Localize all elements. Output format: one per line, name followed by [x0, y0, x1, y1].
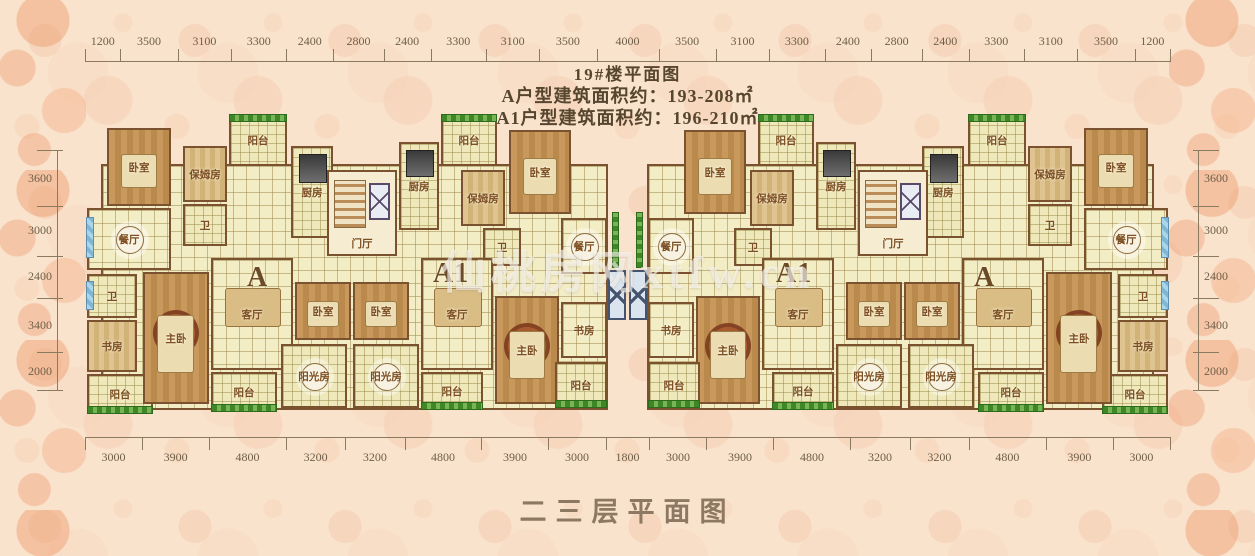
xbox-furniture	[369, 183, 391, 219]
room-label: 卧室	[129, 160, 150, 175]
dimension-segment: 3400	[23, 298, 57, 352]
room-label: 卧室	[313, 304, 334, 319]
dimension-value: 3500	[556, 34, 580, 48]
dimension-segment: 3100	[178, 34, 231, 62]
dimension-segment: 3400	[1199, 298, 1233, 352]
dimension-value: 2400	[298, 34, 322, 48]
dimension-value: 2400	[1204, 269, 1228, 284]
room-label: 客厅	[788, 307, 809, 322]
room-label: 卧室	[1106, 160, 1127, 175]
room-label: 卫	[497, 240, 508, 255]
dimension-segment: 3200	[345, 437, 404, 465]
dimension-segment: 3000	[649, 437, 706, 465]
dimension-value: 3600	[1204, 171, 1228, 186]
dimension-segment: 3300	[231, 34, 286, 62]
dimension-value: 3300	[984, 34, 1008, 48]
dimension-value: 4800	[236, 450, 260, 464]
room-bath-a-west: 卫	[87, 274, 137, 318]
room-balcony-a-sc-mirror: 阳台	[978, 372, 1044, 412]
dimension-segment: 2400	[23, 256, 57, 299]
dimension-value: 3200	[927, 450, 951, 464]
room-label: 阳光房	[370, 369, 402, 384]
room-label: 保姆房	[1034, 167, 1066, 182]
room-bedroom-a1-north: 卧室	[509, 130, 571, 214]
room-label: 卫	[200, 218, 211, 233]
xbox-furniture	[900, 183, 922, 219]
dimension-segment: 3000	[85, 437, 142, 465]
dimension-value: 3100	[730, 34, 754, 48]
room-kitchen-a1-mirror: 厨房	[816, 142, 856, 230]
room-label: 卫	[1045, 218, 1056, 233]
room-label: 餐厅	[119, 232, 140, 247]
dimension-segment: 3300	[769, 34, 824, 62]
dimension-scale-bottom: 3000390048003200320048003900300018003000…	[85, 437, 1170, 465]
dimension-value: 1800	[615, 450, 639, 464]
room-label: 卧室	[922, 304, 943, 319]
dimension-segment: 3100	[1024, 34, 1077, 62]
dimension-value: 2400	[28, 269, 52, 284]
room-label: 客厅	[447, 307, 468, 322]
room-label: 卫	[107, 289, 118, 304]
room-kitchen-a-mirror: 厨房	[922, 146, 964, 238]
room-label: 阳台	[571, 378, 592, 393]
room-label: 阳台	[776, 133, 797, 148]
dimension-segment: 4800	[209, 437, 286, 465]
dimension-value: 2400	[933, 34, 957, 48]
dimension-value: 2800	[346, 34, 370, 48]
dimension-value: 3200	[868, 450, 892, 464]
room-label: 阳台	[110, 387, 131, 402]
dimension-value: 3300	[247, 34, 271, 48]
unit-type-label-A: A	[974, 262, 995, 294]
room-study-a: 书房	[87, 320, 137, 372]
room-sunroom-a1-mirror: 阳光房	[836, 344, 902, 408]
window-strip	[86, 217, 94, 258]
room-kitchen-a1: 厨房	[399, 142, 439, 230]
room-dining-a1-mirror: 餐厅	[648, 218, 694, 274]
room-label: 阳光房	[298, 369, 330, 384]
dimension-value: 3000	[565, 450, 589, 464]
dimension-value: 1200	[91, 34, 115, 48]
room-label: 门厅	[352, 236, 373, 251]
room-label: 客厅	[993, 307, 1014, 322]
dimension-segment: 3000	[548, 437, 605, 465]
room-label: 书房	[102, 339, 123, 354]
dimension-segment: 3200	[286, 437, 345, 465]
dimension-value: 3200	[304, 450, 328, 464]
dimension-value: 3300	[446, 34, 470, 48]
room-sunroom-a-mirror: 阳光房	[908, 344, 974, 408]
dimension-segment: 3900	[142, 437, 209, 465]
dimension-value: 3100	[1039, 34, 1063, 48]
dimension-value: 3100	[501, 34, 525, 48]
dimension-segment: 3500	[539, 34, 596, 62]
room-label: 主卧	[718, 343, 739, 358]
room-label: 厨房	[409, 179, 430, 194]
room-center-planter-right	[636, 212, 643, 268]
planter-strip	[978, 404, 1044, 412]
dimension-value: 3100	[192, 34, 216, 48]
planter-strip	[772, 402, 834, 410]
dimension-value: 2000	[1204, 364, 1228, 379]
room-master-a1-mirror: 主卧	[696, 296, 760, 404]
dimension-segment: 4800	[773, 437, 850, 465]
dimension-value: 4000	[616, 34, 640, 48]
room-label: 阳台	[987, 133, 1008, 148]
dimension-value: 3900	[164, 450, 188, 464]
unit-a-area: A户型建筑面积约：193-208㎡	[0, 85, 1255, 107]
dimension-value: 3000	[102, 450, 126, 464]
dimension-value: 3500	[137, 34, 161, 48]
dimension-value: 3300	[785, 34, 809, 48]
dimension-value: 2400	[836, 34, 860, 48]
room-entry-core-mirror: 门厅	[858, 170, 928, 256]
stairs-furniture	[865, 180, 897, 228]
stove-furniture	[823, 150, 850, 177]
room-label: 主卧	[166, 331, 187, 346]
planter-strip	[211, 404, 277, 412]
room-bedroom-a1-north-mirror: 卧室	[684, 130, 746, 214]
dimension-segment: 2800	[333, 34, 384, 62]
window-strip	[86, 281, 94, 310]
dimension-value: 3200	[363, 450, 387, 464]
dimension-value: 3600	[28, 171, 52, 186]
room-label: 保姆房	[189, 167, 221, 182]
dimension-segment: 3300	[431, 34, 486, 62]
dimension-value: 2800	[885, 34, 909, 48]
room-label: 阳台	[1001, 385, 1022, 400]
dimension-segment: 3300	[969, 34, 1024, 62]
room-label: 书房	[574, 323, 595, 338]
room-bedroom-a1-south: 卧室	[353, 282, 409, 340]
dimension-scale-top: 1200350031003300240028002400330031003500…	[85, 34, 1170, 62]
room-dining-a-mirror: 餐厅	[1084, 208, 1168, 270]
room-label: 保姆房	[467, 191, 499, 206]
room-label: 主卧	[517, 343, 538, 358]
dimension-value: 3500	[675, 34, 699, 48]
dimension-segment: 3900	[481, 437, 548, 465]
stove-furniture	[406, 150, 433, 177]
dimension-segment: 3000	[1113, 437, 1170, 465]
unit-a1-area: A1户型建筑面积约：196-210㎡	[0, 107, 1255, 129]
room-balcony-a1-sc-mirror: 阳台	[772, 372, 834, 410]
room-label: 门厅	[883, 236, 904, 251]
room-label: 阳光房	[925, 369, 957, 384]
dimension-segment: 3900	[706, 437, 773, 465]
room-label: 主卧	[1069, 331, 1090, 346]
unit-type-label-A: A	[247, 262, 268, 294]
dimension-value: 3000	[1204, 223, 1228, 238]
stove-furniture	[299, 154, 328, 182]
dimension-value: 3900	[503, 450, 527, 464]
room-balcony-a1-se: 阳台	[555, 362, 607, 408]
room-master-a-mirror: 主卧	[1046, 272, 1112, 404]
dimension-segment: 3500	[659, 34, 716, 62]
room-balcony-a1-se-mirror: 阳台	[648, 362, 700, 408]
room-bath-a-top-mirror: 卫	[1028, 204, 1072, 246]
stove-furniture	[930, 154, 959, 182]
window-strip	[1161, 281, 1169, 310]
room-bedroom-nw: 卧室	[107, 128, 171, 206]
dimension-value: 3500	[1094, 34, 1118, 48]
room-nanny-a1-mirror: 保姆房	[750, 170, 794, 226]
room-label: 卫	[1138, 289, 1149, 304]
room-label: 保姆房	[756, 191, 788, 206]
room-label: 卧室	[705, 165, 726, 180]
room-label: 阳台	[248, 133, 269, 148]
dimension-value: 4800	[800, 450, 824, 464]
dimension-segment: 3500	[120, 34, 177, 62]
room-label: 厨房	[302, 185, 323, 200]
planter-strip	[421, 402, 483, 410]
room-label: 阳台	[234, 385, 255, 400]
unit-type-label-A1: A1	[433, 258, 469, 290]
room-label: 卧室	[864, 304, 885, 319]
room-label: 阳台	[793, 384, 814, 399]
dimension-segment: 4000	[597, 34, 659, 62]
dimension-segment: 3600	[23, 150, 57, 206]
dimension-segment: 4800	[405, 437, 482, 465]
room-bath-a-top: 卫	[183, 204, 227, 246]
room-bedroom-a1-south-mirror: 卧室	[846, 282, 902, 340]
dimension-segment: 2800	[871, 34, 922, 62]
dimension-segment: 3200	[910, 437, 969, 465]
dimension-segment: 1800	[606, 437, 650, 465]
dimension-segment: 3000	[1199, 206, 1233, 255]
dimension-segment: 4800	[969, 437, 1046, 465]
dimension-scale-left: 36003000240034002000	[23, 150, 58, 390]
dimension-segment: 3500	[1077, 34, 1134, 62]
dimension-value: 3000	[28, 223, 52, 238]
unit-type-label-A1: A1	[776, 258, 812, 290]
dimension-segment: 3200	[850, 437, 909, 465]
room-nanny-a: 保姆房	[183, 146, 227, 202]
room-label: 阳台	[664, 378, 685, 393]
room-study-a1: 书房	[561, 302, 607, 358]
room-dining-a: 餐厅	[87, 208, 171, 270]
dimension-value: 2000	[28, 364, 52, 379]
dimension-segment: 2400	[1199, 256, 1233, 299]
room-study-a1-mirror: 书房	[648, 302, 694, 358]
room-label: 卧室	[530, 165, 551, 180]
dimension-value: 3000	[666, 450, 690, 464]
room-label: 阳台	[442, 384, 463, 399]
dimension-value: 3000	[1129, 450, 1153, 464]
room-label: 厨房	[933, 185, 954, 200]
dimension-value: 4800	[431, 450, 455, 464]
planter-strip	[648, 400, 700, 408]
dimension-segment: 2400	[384, 34, 431, 62]
room-bath-a-west-mirror: 卫	[1118, 274, 1168, 318]
floorplan-page: 1200350031003300240028002400330031003500…	[0, 0, 1255, 556]
planter-strip	[87, 406, 153, 414]
dimension-segment: 2000	[23, 352, 57, 390]
room-master-a: 主卧	[143, 272, 209, 404]
room-elevator-left	[608, 270, 626, 320]
room-label: 厨房	[826, 179, 847, 194]
room-label: 书房	[1133, 339, 1154, 354]
room-study-a-mirror: 书房	[1118, 320, 1168, 372]
dimension-value: 2400	[395, 34, 419, 48]
room-master-a1: 主卧	[495, 296, 559, 404]
room-balcony-a-sc: 阳台	[211, 372, 277, 412]
dimension-segment: 3100	[716, 34, 769, 62]
dimension-value: 4800	[995, 450, 1019, 464]
room-label: 阳台	[1125, 387, 1146, 402]
room-label: 书房	[661, 323, 682, 338]
dimension-value: 1200	[1140, 34, 1164, 48]
room-dining-a1: 餐厅	[561, 218, 607, 274]
dimension-segment: 3900	[1046, 437, 1113, 465]
room-label: 卫	[748, 240, 759, 255]
room-label: 餐厅	[1116, 232, 1137, 247]
dimension-value: 3900	[728, 450, 752, 464]
room-bedroom-a-south-mirror: 卧室	[904, 282, 960, 340]
room-label: 客厅	[242, 307, 263, 322]
stairs-furniture	[334, 180, 366, 228]
planter-strip	[555, 400, 607, 408]
dimension-segment: 3600	[1199, 150, 1233, 206]
room-bedroom-nw-mirror: 卧室	[1084, 128, 1148, 206]
window-strip	[1161, 217, 1169, 258]
plan-title: 19#楼平面图	[0, 60, 1255, 85]
planter-strip	[1102, 406, 1168, 414]
title-block: 19#楼平面图 A户型建筑面积约：193-208㎡ A1户型建筑面积约：196-…	[0, 60, 1255, 129]
room-label: 餐厅	[661, 239, 682, 254]
dimension-segment: 2400	[825, 34, 872, 62]
dimension-value: 3400	[28, 318, 52, 333]
room-elevator-right	[629, 270, 647, 320]
room-balcony-a1-sc: 阳台	[421, 372, 483, 410]
room-sunroom-a: 阳光房	[281, 344, 347, 408]
room-label: 阳光房	[853, 369, 885, 384]
room-bedroom-a-south: 卧室	[295, 282, 351, 340]
room-entry-core: 门厅	[327, 170, 397, 256]
dimension-value: 3400	[1204, 318, 1228, 333]
dimension-segment: 3000	[23, 206, 57, 255]
room-sunroom-a1: 阳光房	[353, 344, 419, 408]
dimension-scale-right: 36003000240034002000	[1198, 150, 1233, 390]
dimension-segment: 1200	[1135, 34, 1170, 62]
floor-plan: 卧室卧室保姆房保姆房卫卫阳台阳台厨房厨房餐厅餐厅卫卫书房书房阳台阳台主卧主卧客厅…	[85, 112, 1170, 430]
room-label: 阳台	[459, 133, 480, 148]
room-label: 卧室	[371, 304, 392, 319]
dimension-segment: 2400	[922, 34, 969, 62]
dimension-segment: 3100	[486, 34, 539, 62]
floor-level-caption: 二三层平面图	[0, 490, 1255, 529]
room-center-planter-left	[612, 212, 619, 268]
room-nanny-a-mirror: 保姆房	[1028, 146, 1072, 202]
dimension-value: 3900	[1067, 450, 1091, 464]
room-label: 餐厅	[574, 239, 595, 254]
room-nanny-a1: 保姆房	[461, 170, 505, 226]
dimension-segment: 2000	[1199, 352, 1233, 390]
dimension-segment: 1200	[85, 34, 120, 62]
dimension-segment: 2400	[286, 34, 333, 62]
